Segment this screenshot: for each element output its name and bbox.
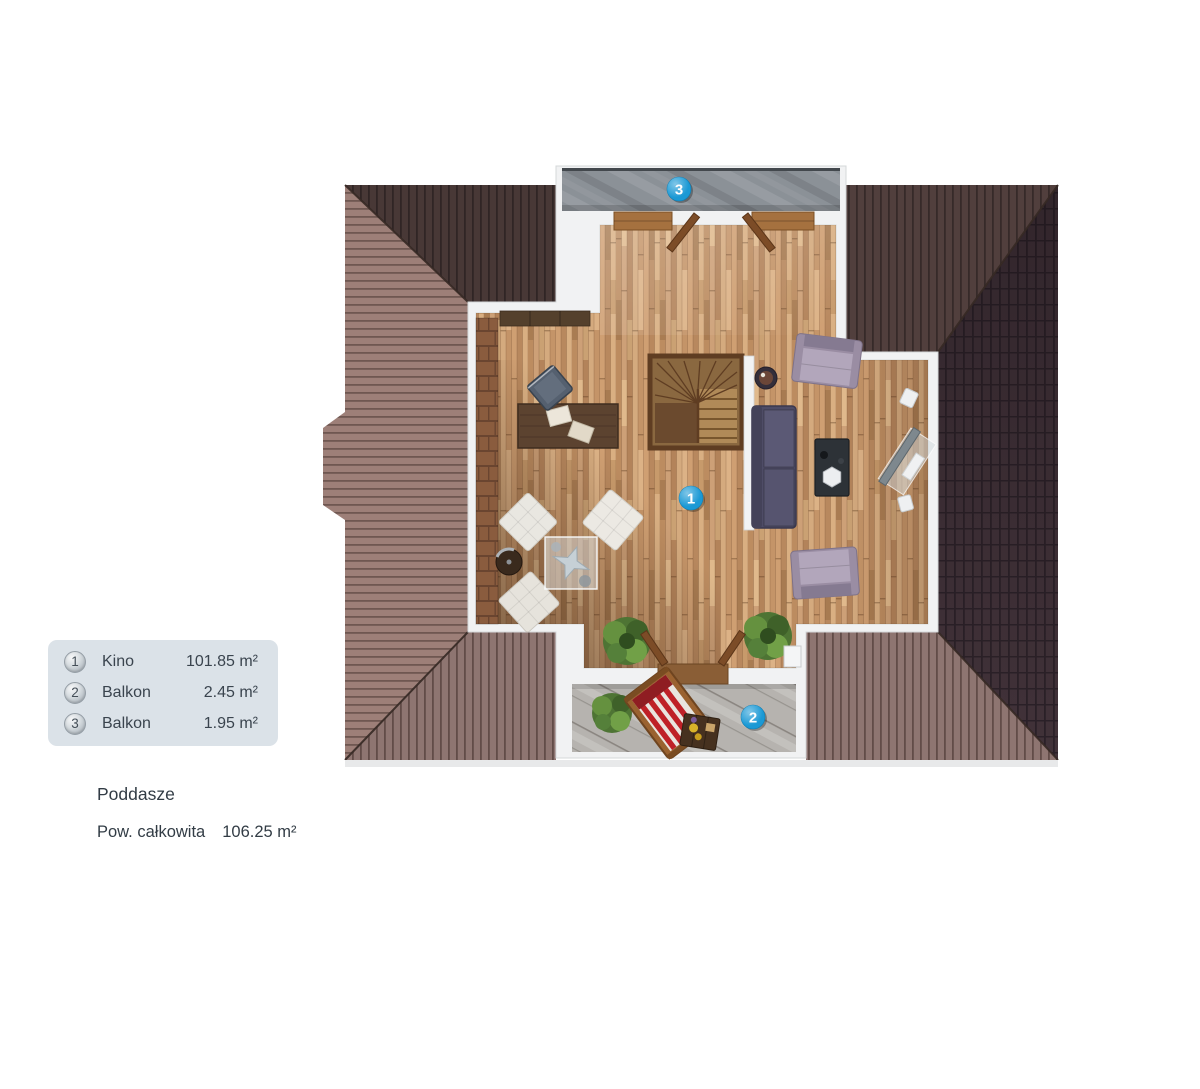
sofa <box>752 406 796 528</box>
legend-row-kino: 1 Kino 101.85 m² <box>64 651 258 673</box>
marker-1-label: 1 <box>687 491 695 508</box>
sideboard <box>500 311 590 326</box>
total-area-label: Pow. całkowita <box>97 823 205 842</box>
desk <box>518 404 618 448</box>
total-area-value: 106.25 m² <box>222 823 296 842</box>
hex-bowl <box>823 467 840 487</box>
legend-row-balkon-3: 3 Balkon 1.95 m² <box>64 713 258 735</box>
glass-table <box>545 537 597 589</box>
legend-room-name: Balkon <box>102 685 190 701</box>
marker-2-label: 2 <box>749 710 757 727</box>
legend-room-name: Balkon <box>102 716 190 732</box>
legend-badge-3: 3 <box>64 713 86 735</box>
plant <box>603 617 651 665</box>
floor-lamp <box>496 549 522 575</box>
roof-eave-shadow <box>345 760 1058 767</box>
legend-panel: 1 Kino 101.85 m² 2 Balkon 2.45 m² 3 Balk… <box>48 640 278 746</box>
page: 1 2 3 1 Kino 101.85 m² 2 Balkon 2.45 m² … <box>0 0 1200 1089</box>
floor-title: Poddasze <box>97 784 175 805</box>
staircase <box>650 356 742 448</box>
legend-room-area: 1.95 m² <box>204 716 258 732</box>
legend-room-area: 101.85 m² <box>186 654 258 670</box>
legend-room-area: 2.45 m² <box>204 685 258 701</box>
legend-badge-1: 1 <box>64 651 86 673</box>
balcony-top <box>562 168 840 211</box>
legend-row-balkon-2: 2 Balkon 2.45 m² <box>64 682 258 704</box>
legend-badge-2: 2 <box>64 682 86 704</box>
armchair-top <box>791 333 862 389</box>
balcony-table <box>680 713 721 750</box>
armchair-bottom <box>790 547 859 599</box>
brick-wall-strip <box>476 318 498 624</box>
side-table-round <box>755 367 777 389</box>
coffee-table <box>815 439 849 496</box>
floorplan-render: 1 2 3 <box>0 0 1200 1089</box>
marker-3-label: 3 <box>675 182 683 199</box>
door-panel <box>784 646 801 667</box>
legend-room-name: Kino <box>102 654 172 670</box>
total-area-line: Pow. całkowita 106.25 m² <box>97 823 297 842</box>
